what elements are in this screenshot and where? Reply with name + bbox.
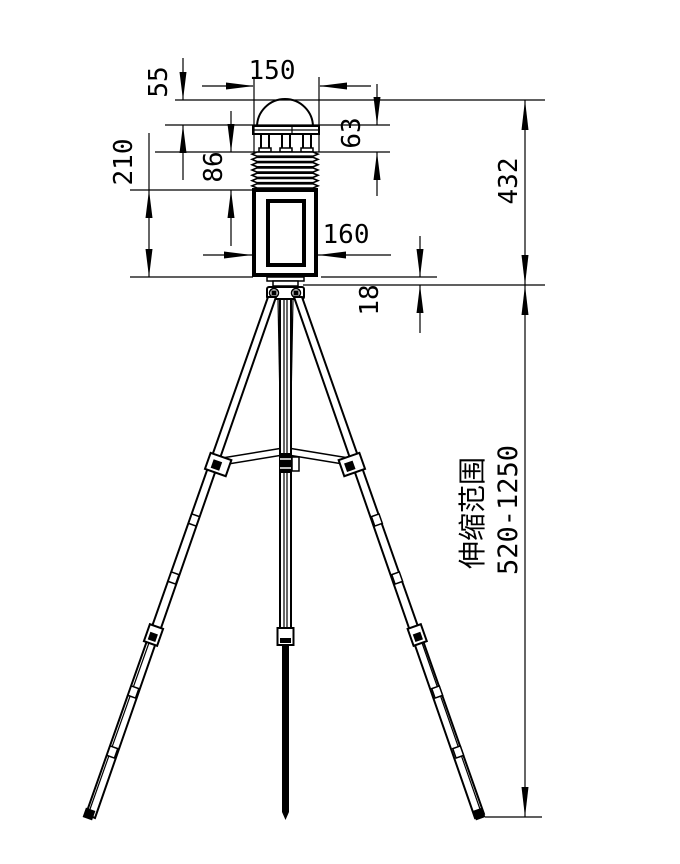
dim-432-label: 432: [494, 158, 524, 205]
dim-63: 63: [337, 84, 381, 196]
column-rod: [282, 645, 289, 820]
dome-brim: [253, 126, 319, 134]
technical-drawing: 150 55 63 86 210 160: [0, 0, 680, 864]
display-window: [268, 201, 304, 265]
dim-63-label: 63: [337, 117, 367, 148]
dim-160-label: 160: [323, 220, 370, 250]
dim-150: 150: [202, 56, 371, 90]
dim-210: 210: [109, 133, 153, 277]
center-column: [278, 299, 294, 820]
tripod-range-label: 伸缩范围: [456, 457, 489, 569]
extension-lines: [130, 77, 545, 817]
support-posts: [259, 134, 313, 152]
dim-18-label: 18: [355, 284, 385, 315]
mount-plate: [267, 277, 304, 286]
dome-cap: [257, 99, 313, 127]
tripod: [83, 287, 486, 820]
dim-432: 432: [494, 100, 529, 285]
dim-150-label: 150: [249, 56, 296, 86]
radiation-shield: [252, 152, 318, 188]
dim-86-label: 86: [199, 151, 229, 182]
dim-55-label: 55: [144, 66, 174, 97]
dim-86: 86: [199, 111, 235, 246]
drawing-canvas: 150 55 63 86 210 160: [0, 0, 680, 864]
dim-210-label: 210: [109, 139, 139, 186]
dim-tripod-range: 伸缩范围 520-1250: [456, 285, 529, 817]
tripod-range-value: 520-1250: [493, 445, 524, 575]
weather-station: [252, 99, 319, 286]
dim-55: 55: [144, 58, 187, 180]
